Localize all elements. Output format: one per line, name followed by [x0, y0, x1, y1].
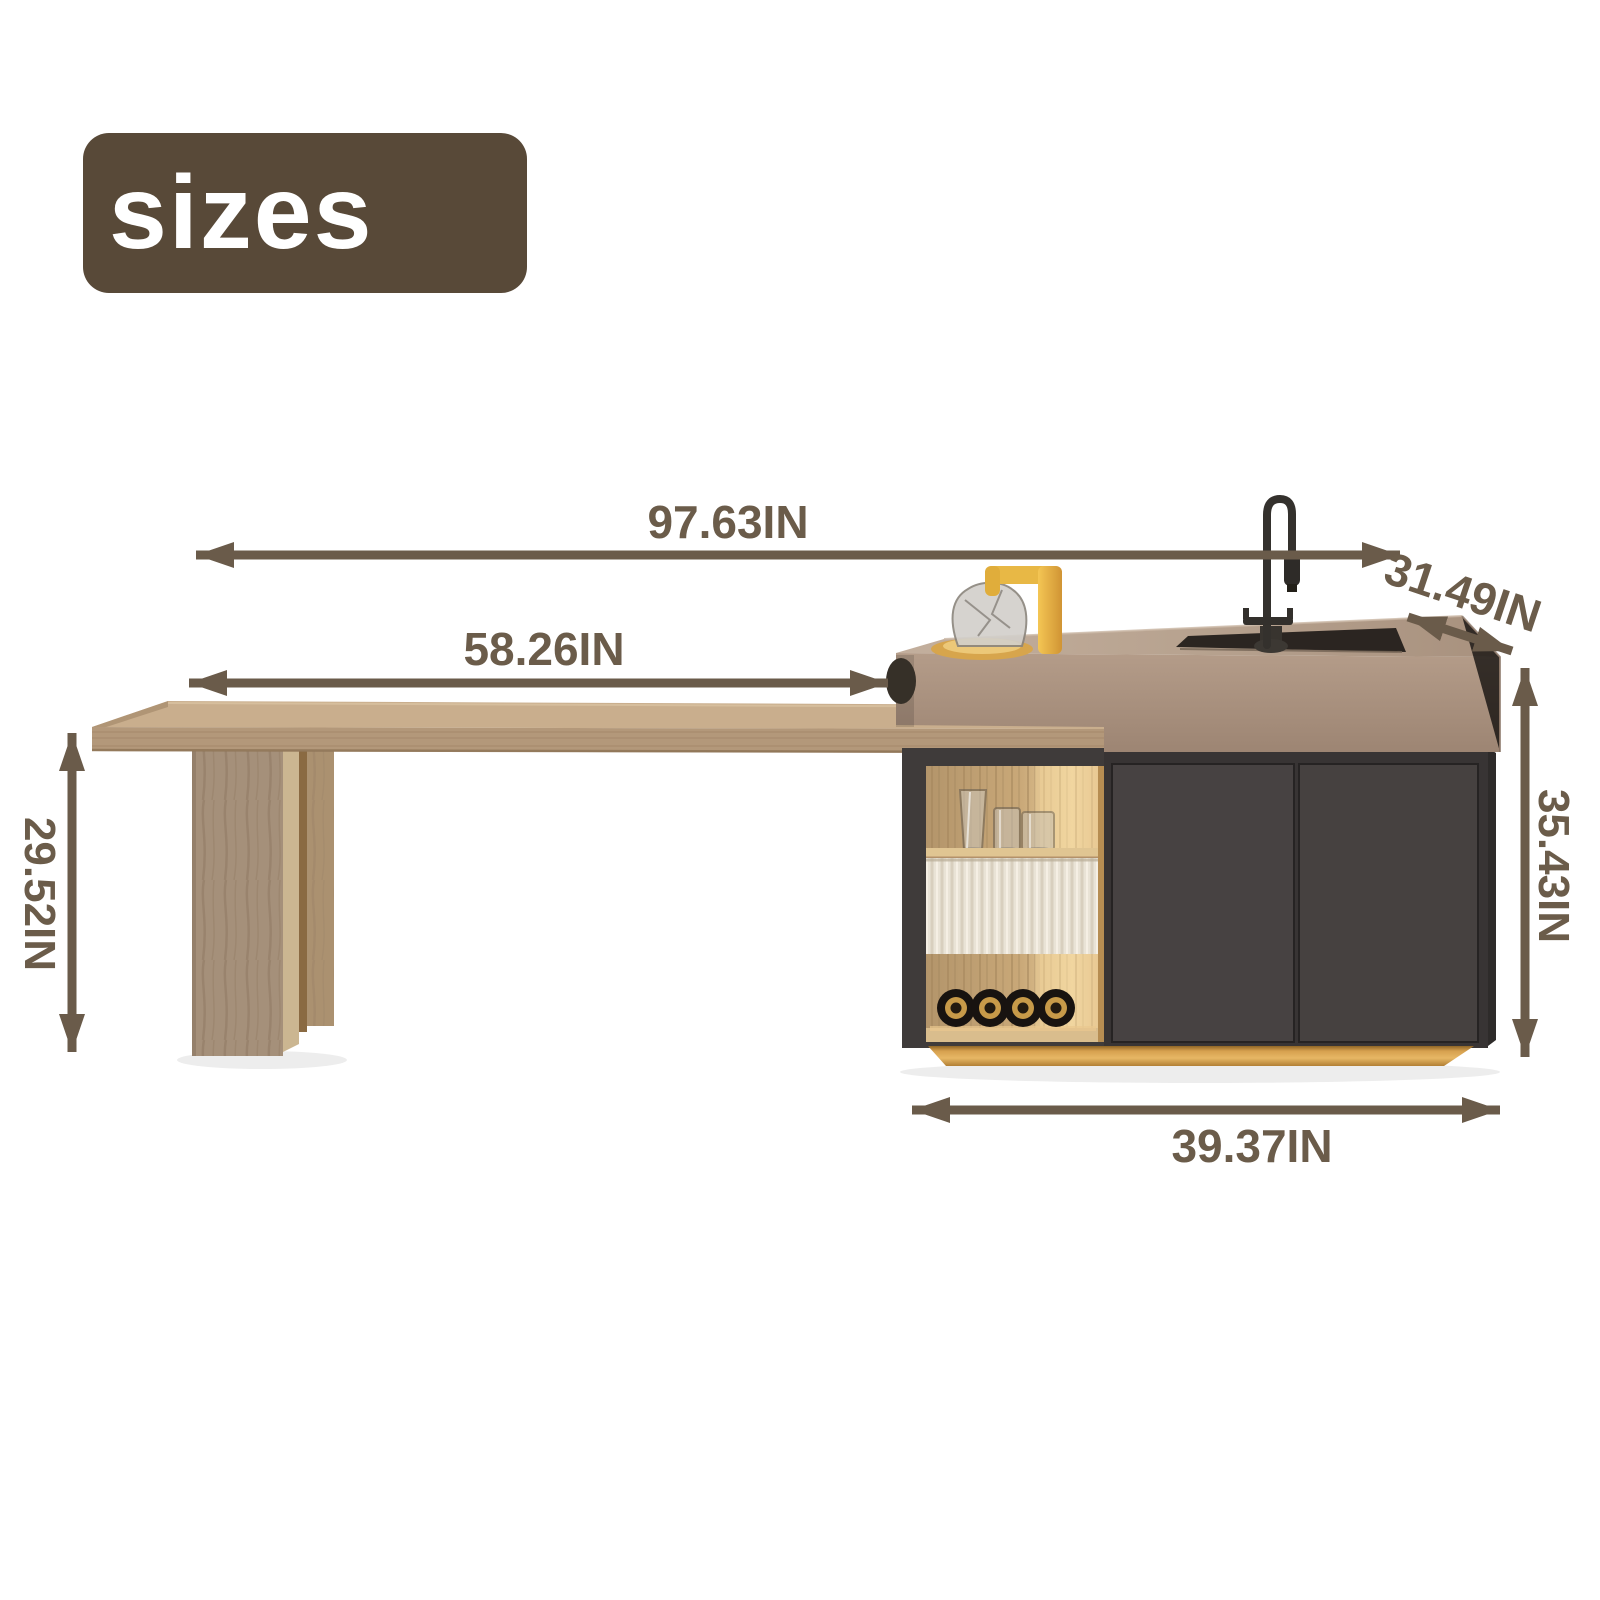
dim-table-height-label: 29.52IN — [14, 817, 64, 971]
dim-tabletop-length-label: 58.26IN — [463, 622, 624, 676]
dim-overall-width-label: 97.63IN — [647, 495, 808, 549]
open-shelf — [926, 766, 1105, 1042]
kitchen-island — [902, 748, 1496, 1066]
gold-plinth — [928, 1046, 1474, 1066]
cabinet-door-right — [1299, 764, 1478, 1042]
cabinet-door-left — [1112, 764, 1294, 1042]
size-diagram: sizes 97.63IN 58.26IN 31.49IN 35.43IN 29… — [0, 0, 1600, 1600]
title-badge-label: sizes — [83, 161, 373, 265]
dim-island-height-label: 35.43IN — [1528, 789, 1578, 943]
side-knob — [886, 658, 916, 704]
table-leg — [192, 748, 334, 1056]
cabinet-doors — [1104, 748, 1496, 1048]
dim-island-base-width-label: 39.37IN — [1171, 1119, 1332, 1173]
shelf-gold-trim — [1098, 766, 1105, 1042]
kettle-and-stand — [931, 566, 1062, 660]
title-badge: sizes — [83, 133, 527, 293]
stand-post — [1038, 566, 1062, 654]
